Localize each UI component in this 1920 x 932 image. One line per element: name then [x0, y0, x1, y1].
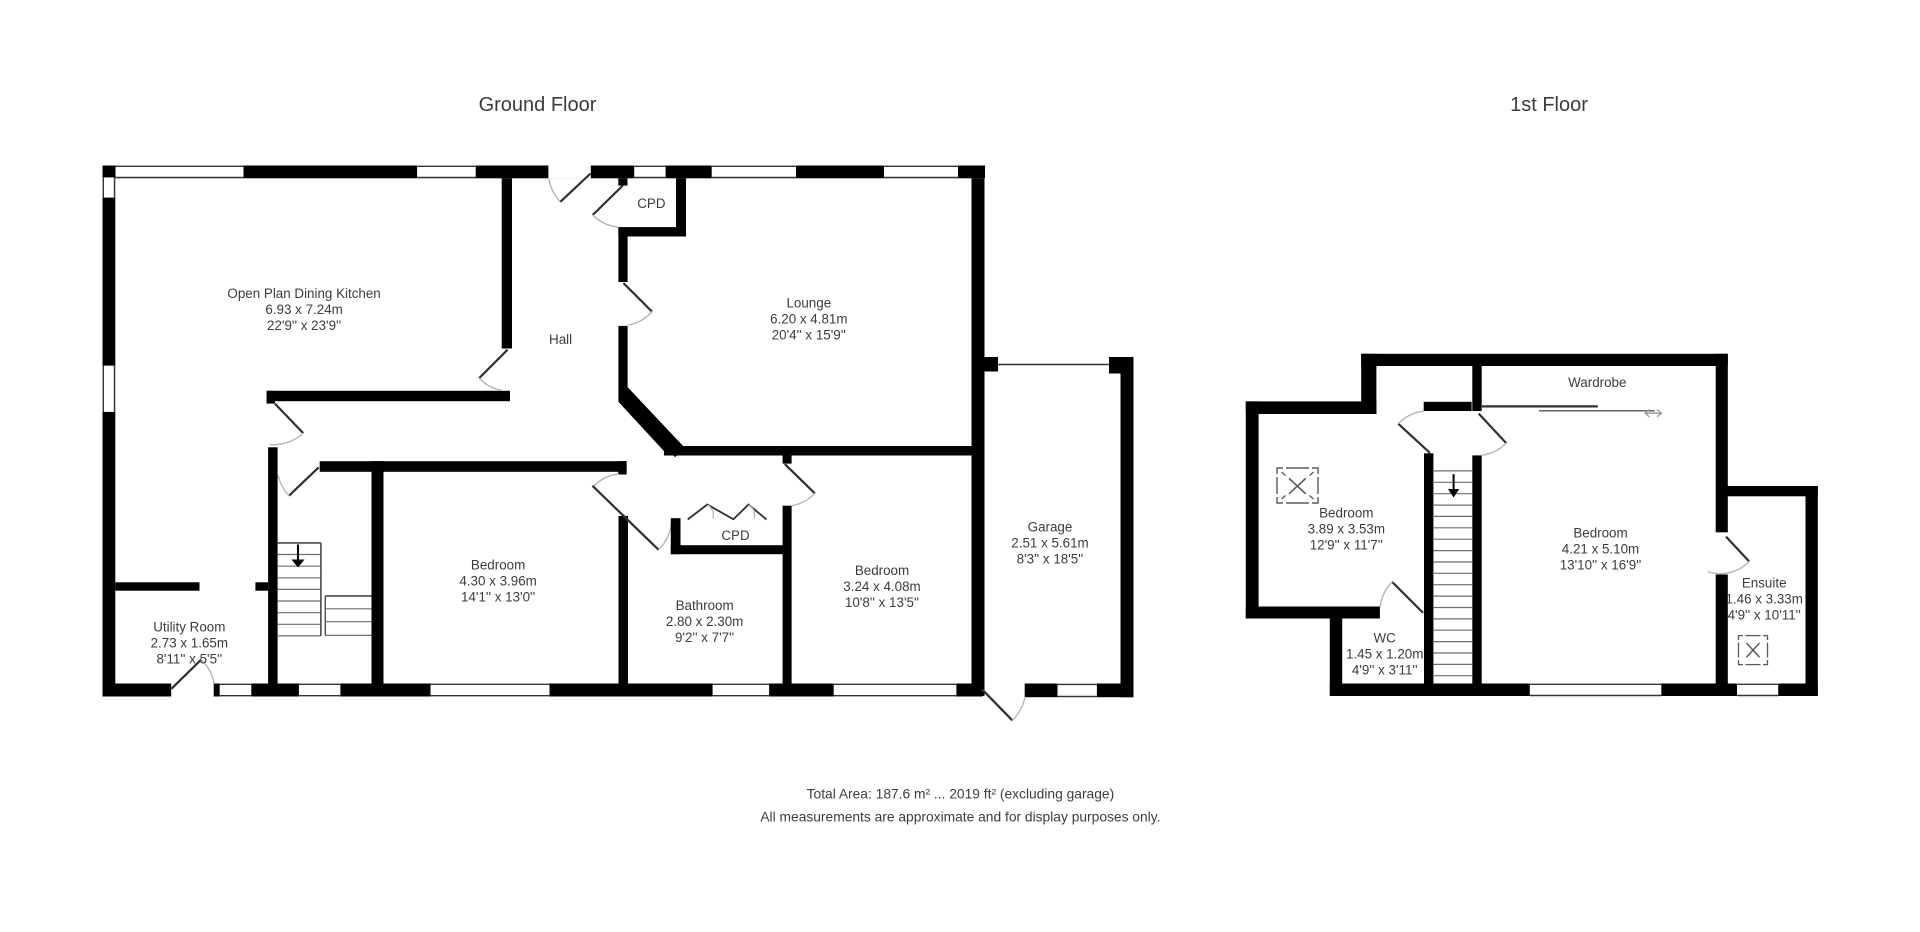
svg-text:6.93 x 7.24m: 6.93 x 7.24m	[265, 302, 342, 317]
svg-text:Lounge: Lounge	[786, 295, 831, 310]
svg-text:14'1'' x 13'0'': 14'1'' x 13'0''	[461, 590, 535, 605]
svg-text:20'4'' x 15'9'': 20'4'' x 15'9''	[772, 327, 846, 342]
svg-text:Garage: Garage	[1028, 520, 1073, 535]
svg-text:WC: WC	[1374, 631, 1397, 646]
svg-text:22'9'' x 23'9'': 22'9'' x 23'9''	[267, 318, 341, 333]
svg-text:Bedroom: Bedroom	[1319, 506, 1373, 521]
svg-text:CPD: CPD	[637, 196, 666, 211]
svg-text:9'2'' x 7'7'': 9'2'' x 7'7''	[675, 630, 734, 645]
svg-text:Utility Room: Utility Room	[153, 619, 225, 634]
svg-text:Ensuite: Ensuite	[1742, 575, 1787, 590]
svg-text:Bedroom: Bedroom	[471, 558, 525, 573]
svg-text:4.21 x 5.10m: 4.21 x 5.10m	[1562, 542, 1639, 557]
svg-text:All measurements are approxima: All measurements are approximate and for…	[760, 810, 1160, 825]
svg-text:Bedroom: Bedroom	[1573, 526, 1627, 541]
svg-text:8'11'' x 5'5'': 8'11'' x 5'5''	[156, 651, 222, 666]
svg-text:1.46 x 3.33m: 1.46 x 3.33m	[1725, 591, 1802, 606]
svg-text:4.30 x 3.96m: 4.30 x 3.96m	[459, 574, 536, 589]
svg-text:Total Area: 187.6 m² ... 2019: Total Area: 187.6 m² ... 2019 ft² (exclu…	[807, 787, 1115, 802]
svg-text:4'9'' x 3'11'': 4'9'' x 3'11''	[1352, 663, 1418, 678]
svg-text:2.73 x 1.65m: 2.73 x 1.65m	[151, 635, 228, 650]
svg-text:6.20 x 4.81m: 6.20 x 4.81m	[770, 311, 847, 326]
svg-text:4'9'' x 10'11'': 4'9'' x 10'11''	[1728, 607, 1801, 622]
svg-text:13'10'' x 16'9'': 13'10'' x 16'9''	[1560, 558, 1642, 573]
svg-text:3.24 x 4.08m: 3.24 x 4.08m	[843, 579, 920, 594]
svg-text:2.80 x 2.30m: 2.80 x 2.30m	[666, 614, 743, 629]
svg-text:8'3'' x 18'5'': 8'3'' x 18'5''	[1017, 552, 1084, 567]
svg-text:Bathroom: Bathroom	[676, 598, 734, 613]
svg-text:Open Plan Dining Kitchen: Open Plan Dining Kitchen	[227, 286, 380, 301]
svg-text:Hall: Hall	[549, 332, 572, 347]
svg-text:Ground Floor: Ground Floor	[479, 94, 597, 116]
svg-text:2.51 x 5.61m: 2.51 x 5.61m	[1011, 536, 1088, 551]
svg-text:Bedroom: Bedroom	[855, 563, 909, 578]
svg-text:10'8'' x 13'5'': 10'8'' x 13'5''	[845, 595, 919, 610]
svg-text:1.45 x 1.20m: 1.45 x 1.20m	[1346, 647, 1423, 662]
svg-text:CPD: CPD	[721, 528, 750, 543]
svg-text:12'9'' x 11'7'': 12'9'' x 11'7''	[1310, 538, 1383, 553]
svg-text:3.89 x 3.53m: 3.89 x 3.53m	[1308, 522, 1385, 537]
svg-text:1st Floor: 1st Floor	[1510, 94, 1588, 116]
svg-text:Wardrobe: Wardrobe	[1568, 375, 1626, 390]
